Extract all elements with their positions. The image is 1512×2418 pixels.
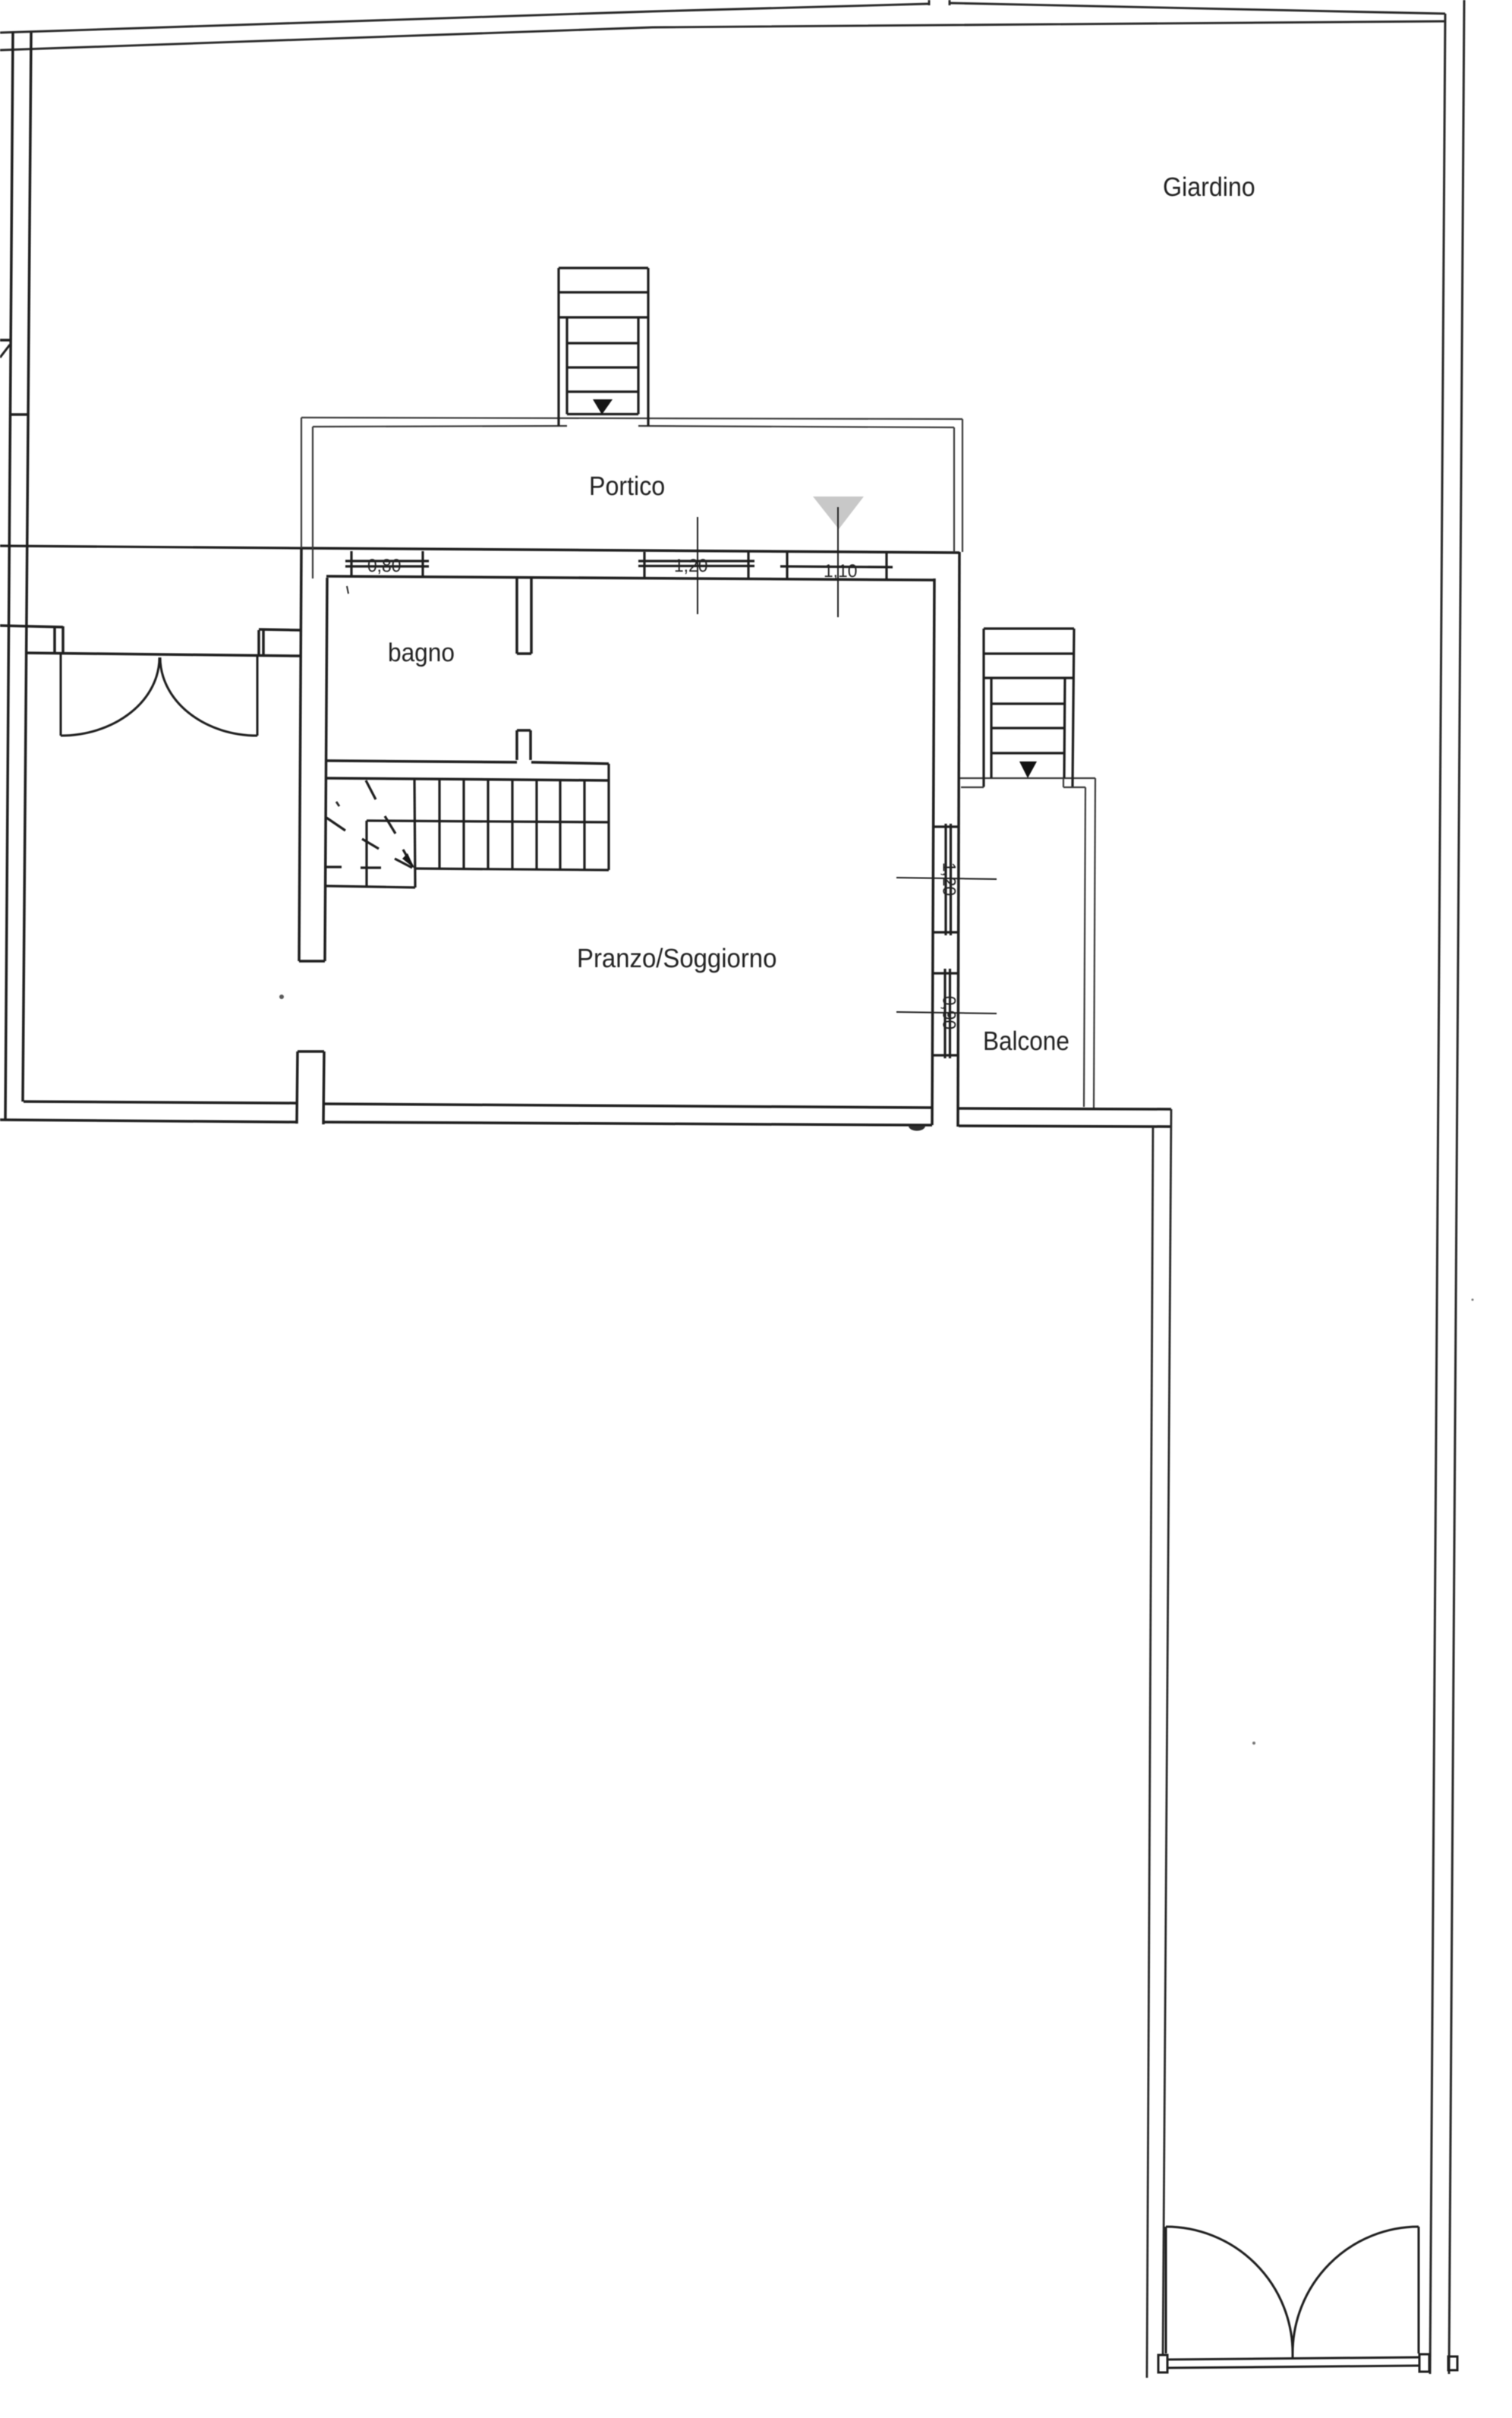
svg-text:1,20: 1,20 bbox=[939, 862, 959, 896]
svg-text:Pranzo/Soggiorno: Pranzo/Soggiorno bbox=[577, 944, 776, 973]
svg-text:0,80: 0,80 bbox=[367, 556, 401, 576]
svg-text:1,20: 1,20 bbox=[674, 556, 707, 576]
svg-text:Giardino: Giardino bbox=[1163, 172, 1255, 202]
svg-text:0,90: 0,90 bbox=[939, 996, 959, 1029]
svg-text:Balcone: Balcone bbox=[983, 1026, 1069, 1056]
svg-text:1,10: 1,10 bbox=[824, 561, 857, 582]
svg-text:Portico: Portico bbox=[589, 471, 665, 501]
svg-text:bagno: bagno bbox=[388, 638, 455, 667]
